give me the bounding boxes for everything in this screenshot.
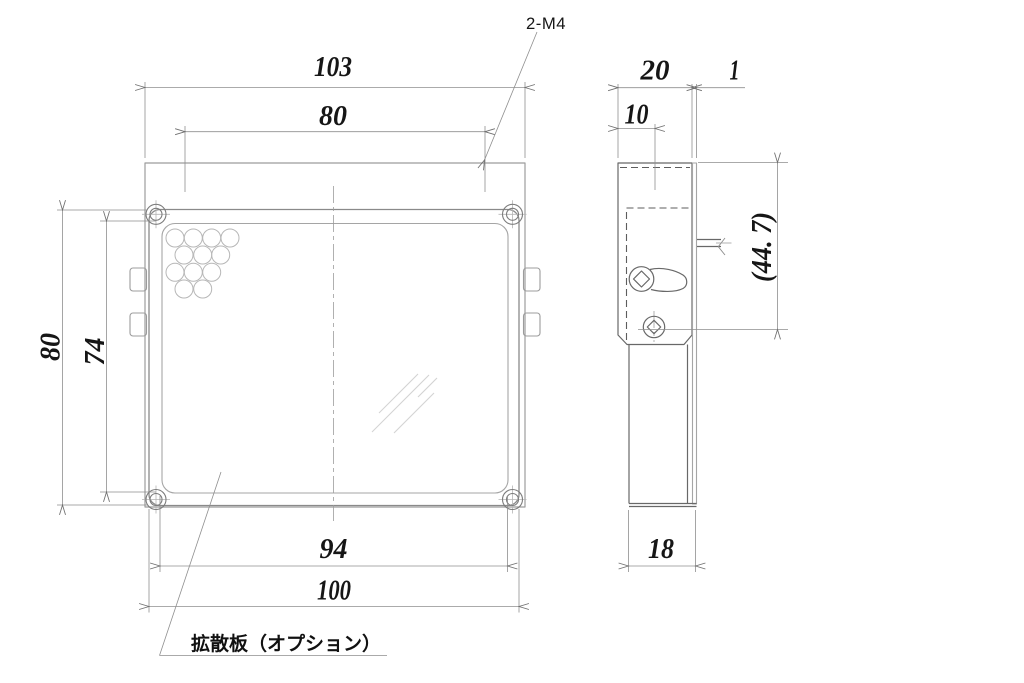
dim-text-20: 20	[640, 55, 670, 87]
front-panel-outline	[149, 210, 519, 506]
lever-socket	[634, 271, 650, 287]
dim-side-hole-offset: 10	[618, 99, 655, 191]
corner-screws	[142, 200, 527, 513]
callout-diffuser-note: 拡散板（オプション）	[160, 472, 388, 656]
dim-text-80-left: 80	[35, 333, 67, 361]
dimensions: 103 80 80 74 94 100	[35, 51, 789, 613]
cable-stub	[697, 238, 732, 255]
dim-text-80-top: 80	[319, 100, 347, 132]
tab-right-upper	[524, 268, 541, 291]
screw-top-left	[142, 200, 170, 228]
screw-bottom-right	[499, 486, 527, 514]
drawing-sheet: 103 80 80 74 94 100	[0, 0, 1024, 683]
lever-hub	[629, 267, 654, 292]
dim-side-plate-thickness: 1	[697, 55, 746, 159]
dim-text-18: 18	[648, 533, 674, 565]
side-tabs	[130, 268, 540, 336]
dim-front-hole-pitch: 80	[185, 100, 485, 192]
callout-text-2-m4: 2-M4	[526, 14, 566, 33]
body-outline	[618, 163, 692, 345]
dim-side-bracket-width: 18	[629, 510, 696, 572]
glass-reflection	[372, 374, 437, 433]
dim-text-44-7: (44. 7)	[746, 212, 778, 282]
note-text-diffuser: 拡散板（オプション）	[191, 632, 381, 655]
lever-arm	[650, 268, 687, 291]
dim-text-100: 100	[317, 575, 351, 607]
dim-text-74: 74	[79, 338, 111, 366]
tab-left-upper	[130, 268, 147, 291]
side-view	[618, 163, 732, 507]
vent-holes	[166, 229, 239, 298]
bracket-column	[629, 345, 697, 507]
dim-text-103: 103	[314, 51, 352, 83]
back-plate-outline	[145, 163, 525, 507]
tab-right-lower	[524, 313, 541, 336]
diffuser-plate-edge	[693, 163, 697, 504]
technical-drawing: 103 80 80 74 94 100	[0, 0, 1024, 683]
clamp-lever	[629, 267, 687, 292]
front-view	[130, 163, 540, 521]
dim-text-1: 1	[730, 55, 740, 87]
dim-text-10: 10	[625, 99, 649, 131]
mount-screw	[643, 311, 664, 342]
tab-left-lower	[130, 313, 147, 336]
screw-top-right	[499, 200, 527, 228]
dim-text-94: 94	[320, 533, 348, 565]
